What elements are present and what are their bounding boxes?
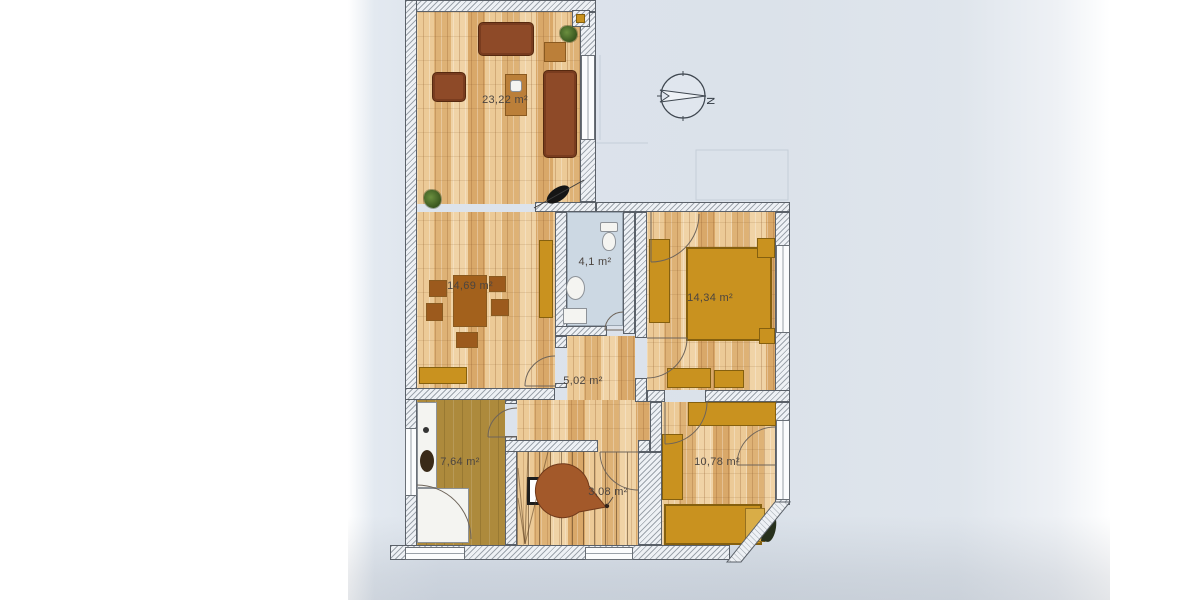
wall-kitchen-right-a <box>505 400 517 404</box>
area-label-staircase: 3,08 m² <box>572 487 644 498</box>
wall-bedroom-large-left-a <box>635 212 647 338</box>
wall-bath-right <box>623 212 635 334</box>
table-decor <box>510 80 522 92</box>
wall-bedrooms-divider-a <box>647 390 665 402</box>
wall-top <box>408 0 596 12</box>
sofa-top <box>478 22 534 56</box>
area-label-bedroom-large: 14,34 m² <box>670 293 750 304</box>
chair <box>456 332 478 348</box>
window-bottom-stairs <box>585 547 633 560</box>
sideboard <box>419 367 467 384</box>
nightstand <box>757 238 775 258</box>
nightstand <box>759 328 775 344</box>
floorplan-photo: N 23,22 m² 14,69 m² 4,1 m² 14,34 m² 5,02… <box>0 0 1200 600</box>
kitchen-tap <box>423 427 429 433</box>
area-label-hallway: 5,02 m² <box>548 376 618 387</box>
dresser <box>667 368 711 388</box>
wall-bath-bottom <box>555 326 607 336</box>
plant-icon <box>560 26 577 42</box>
wall-dining-bottom <box>405 388 555 400</box>
area-label-bedroom-small: 10,78 m² <box>678 457 756 468</box>
chair <box>426 303 443 321</box>
kitchen-counter <box>417 402 437 488</box>
area-label-kitchen: 7,64 m² <box>425 457 495 468</box>
window-kitchen <box>405 428 417 496</box>
stair-void <box>527 477 573 505</box>
wall-dining-right-a <box>555 336 567 348</box>
armchair <box>432 72 466 102</box>
window-bedroom-small <box>776 420 790 500</box>
area-label-dining-room: 14,69 m² <box>435 281 505 292</box>
wall-kitchen-right-b <box>505 436 517 545</box>
wall-bedrooms-divider-b <box>705 390 790 402</box>
sofa-right <box>543 70 577 158</box>
wall-mid-top <box>596 202 790 212</box>
plant-icon <box>424 190 441 208</box>
chair <box>491 299 509 316</box>
wall-stairs-top-b <box>638 440 650 452</box>
area-label-living-room: 23,22 m² <box>470 95 540 106</box>
wall-bedroom-small-left <box>650 402 662 452</box>
wall-bedroom-large-left-b <box>635 378 647 402</box>
sink <box>566 276 585 300</box>
dresser <box>714 370 744 388</box>
window-bottom-kitchen <box>405 547 465 560</box>
dining-cabinet <box>539 240 553 318</box>
kitchen-counter-corner <box>417 488 469 543</box>
window-living <box>581 55 595 140</box>
wardrobe <box>688 402 776 426</box>
side-table <box>544 42 566 62</box>
toilet-bowl <box>602 232 616 251</box>
chimney-flue <box>576 14 585 23</box>
wall-living-bottom <box>535 202 596 212</box>
wardrobe <box>649 239 670 323</box>
area-label-bathroom: 4,1 m² <box>560 257 630 268</box>
wall-stairs-top-a <box>505 440 598 452</box>
wall-stairs-right <box>638 452 662 545</box>
bath-shelf <box>563 308 587 324</box>
window-bedroom-large <box>776 245 790 333</box>
toilet-tank <box>600 222 618 232</box>
